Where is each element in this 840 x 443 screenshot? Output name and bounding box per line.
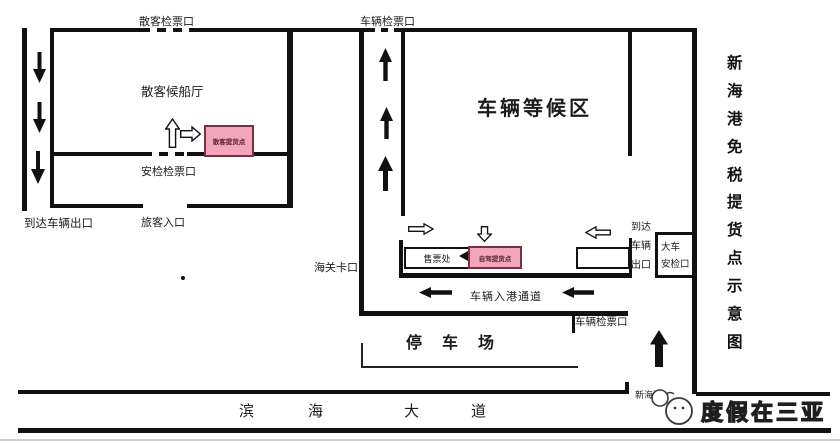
truck-security-line-2: 安检口 [661,256,692,273]
hall-left-wall [50,28,54,208]
boulevard-char-2: 海 [308,400,323,421]
vehicle-ticket-gate-bottom-label: 车辆检票口 [575,314,628,329]
right-outer-wall [692,28,697,394]
map-dot [181,276,185,280]
mid-road-left-line [359,28,364,316]
watermark-doodle-icon [646,386,704,431]
title-char: 税 [727,168,743,184]
flow-down-arrow-icon [33,102,46,133]
page-title: 新 海 港 免 税 提 货 点 示 意 图 [727,56,743,350]
vehicle-waiting-area-label: 车辆等候区 [477,92,592,121]
waiting-area-bottom-wall [399,273,632,278]
flow-left-arrow-icon [562,287,594,298]
self-drive-pickup-label: 自驾提货点 [479,253,512,263]
vehicle-entry-channel-label: 车辆入港通道 [470,288,542,304]
flow-down-arrow-icon [31,151,45,184]
title-char: 海 [727,84,743,100]
gate-line-3: 出口 [631,256,651,275]
boulevard-top-line-left [18,390,629,394]
boxrow-left-wall [399,240,403,277]
passenger-entrance-label: 旅客入口 [141,214,185,230]
watermark-text: 度假在三亚 [701,395,826,427]
title-char: 免 [727,140,743,156]
parking-bracket-vertical [361,343,363,368]
top-wall-segment-a [50,28,141,32]
port-map-diagram: 散客提货点 售票处 自驾提货点 大车 安检口 散客检票口 车辆检票口 散客候船厅… [0,0,840,443]
title-char: 示 [727,279,743,295]
vehicle-ticket-gate-top-label: 车辆检票口 [360,13,415,29]
customs-gate-label: 海关卡口 [314,259,358,275]
hollow-left-arrow-icon [585,226,611,239]
hall-bottom-wall-b [187,204,291,208]
top-wall-segment-b [196,28,368,32]
hall-right-wall [287,28,293,208]
hall-mid-wall-a [52,152,143,156]
entrance-up-arrow-icon [650,330,668,367]
truck-security-gate-box: 大车 安检口 [655,232,695,278]
title-char: 港 [727,112,743,128]
arrival-vehicle-exit-label: 到达车辆出口 [24,215,93,231]
security-gate-dashes [143,152,187,156]
image-bottom-border [0,439,840,441]
boulevard-char-1: 滨 [239,400,254,421]
hollow-down-arrow-icon [477,226,492,242]
flow-up-arrow-icon [378,156,393,191]
walk-in-pickup-label: 散客提货点 [213,136,246,146]
hollow-up-arrow-icon [165,118,180,148]
title-char: 意 [727,307,743,323]
inner-spur-wall [628,28,632,156]
empty-booth-box [576,247,630,269]
flow-left-arrow-icon [419,287,452,298]
flow-up-arrow-icon [379,48,392,81]
title-char: 点 [727,251,743,267]
parking-bracket-horizontal [361,366,578,368]
title-char: 图 [727,335,743,351]
left-road-outer-line [22,28,27,211]
hollow-right-arrow-icon [408,223,434,235]
hollow-right-arrow-icon [180,126,201,142]
boulevard-bottom-line [18,428,831,433]
parking-lot-label: 停车场 [406,329,514,353]
flow-down-arrow-icon [33,52,46,83]
top-wall-segment-c [402,28,696,32]
gate-line-2: 车辆 [631,237,651,256]
mid-road-right-line [401,28,405,216]
boulevard-char-3: 大 [404,400,419,421]
arrival-vehicle-exit-gate-label: 到达 车辆 出口 [631,218,651,275]
security-ticket-gate-label: 安检检票口 [141,163,196,179]
truck-security-line-1: 大车 [661,239,692,256]
boulevard-end-tick [625,382,629,391]
walk-in-pickup-point-box: 散客提货点 [204,125,254,157]
ticket-office-label: 售票处 [423,252,450,265]
boulevard-char-4: 道 [471,400,486,421]
small-left-triangle-icon [459,251,468,261]
self-drive-pickup-point-box: 自驾提货点 [468,246,522,269]
hall-bottom-wall-a [50,204,143,208]
passenger-hall-label: 散客候船厅 [141,81,204,100]
title-char: 货 [727,223,743,239]
title-char: 新 [727,56,743,72]
flow-up-arrow-icon [380,107,393,139]
gate-line-1: 到达 [631,218,651,237]
passenger-ticket-gate-label: 散客检票口 [139,13,194,29]
title-char: 提 [727,195,743,211]
